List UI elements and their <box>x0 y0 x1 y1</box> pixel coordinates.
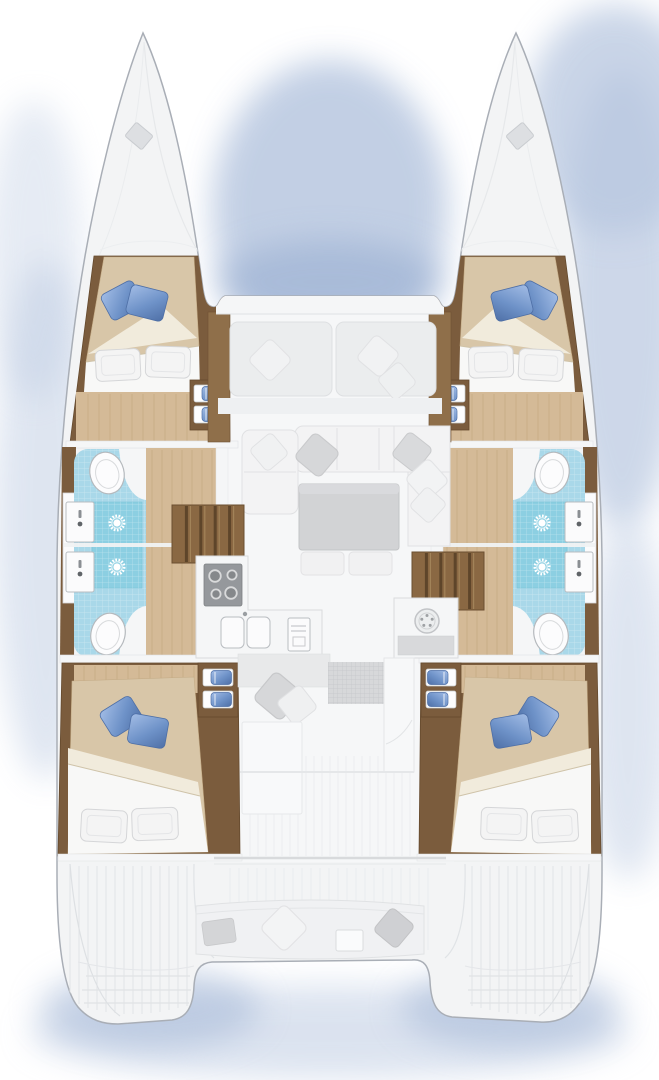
seat-back <box>216 296 444 314</box>
floor-shadow <box>218 398 442 414</box>
galley-sink <box>221 617 244 648</box>
floorplan-canvas <box>0 0 659 1080</box>
counter-inset <box>398 636 454 655</box>
table-highlight <box>299 484 399 494</box>
galley-sink <box>247 617 270 648</box>
floorplan-screenshot <box>0 0 659 1080</box>
seat-cushion <box>349 552 392 575</box>
grid-mat-lines <box>328 662 384 704</box>
stove <box>204 564 242 606</box>
cockpit-table <box>336 930 363 951</box>
seat-cushion <box>301 552 344 575</box>
oven <box>288 618 310 651</box>
galley-right-unit <box>394 598 458 658</box>
side-panel <box>384 658 414 772</box>
galley-faucet <box>243 612 247 616</box>
chart-table <box>242 722 302 814</box>
port-companionway-stairs <box>172 505 244 563</box>
gray-pillow <box>201 918 236 946</box>
